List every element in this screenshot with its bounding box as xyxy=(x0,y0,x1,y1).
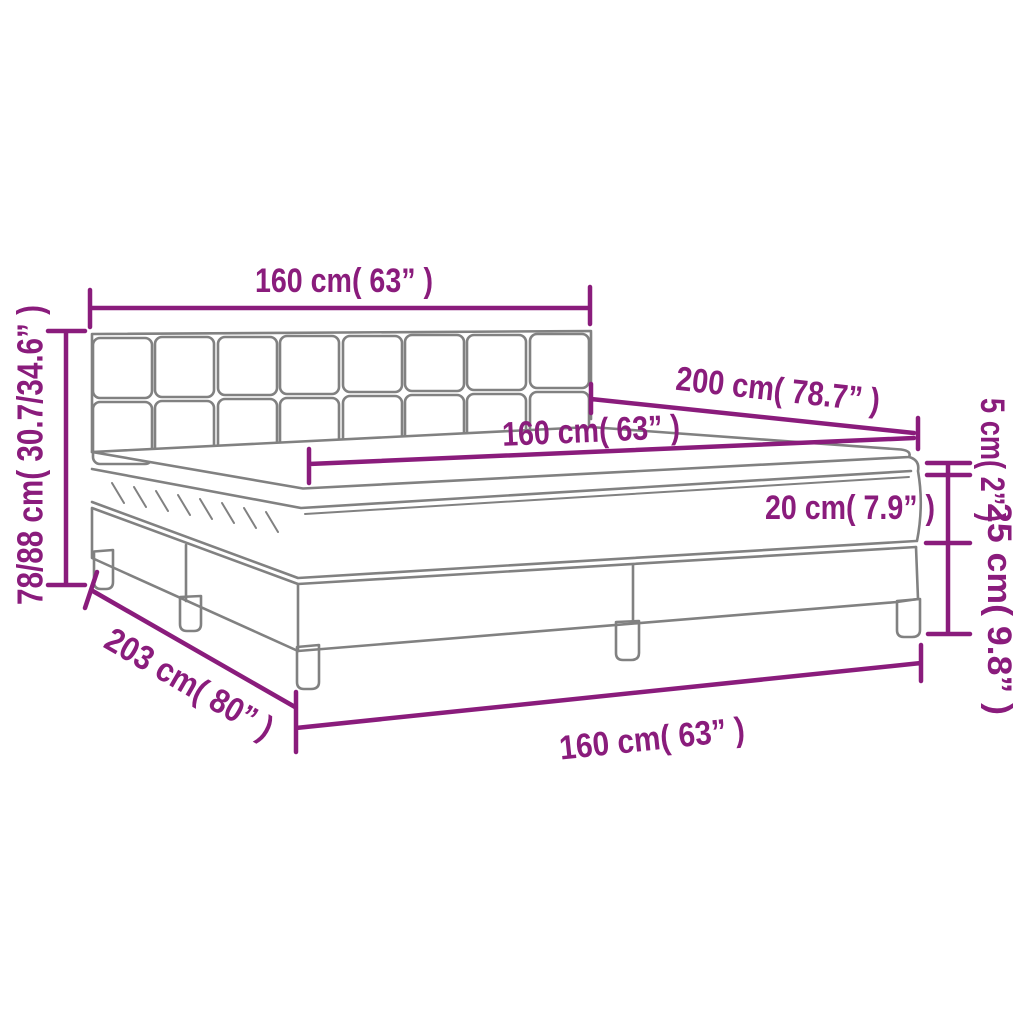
bed-leg xyxy=(94,550,113,589)
headboard-cell xyxy=(467,335,526,390)
bed-leg xyxy=(616,621,639,660)
dim-base-width: 160 cm( 63” ) xyxy=(296,645,921,768)
dim-total-height-label: 78/88 cm( 30.7/34.6” ) xyxy=(10,305,51,605)
dim-height-stack: 5 cm( 2” ) 25 cm( 9.8” ) xyxy=(926,398,1018,715)
dim-headboard-width-label: 160 cm( 63” ) xyxy=(255,262,433,300)
headboard-cell xyxy=(93,338,152,398)
headboard-cell xyxy=(218,337,277,395)
headboard-cell xyxy=(343,336,402,392)
dim-base-width-label: 160 cm( 63” ) xyxy=(558,710,747,767)
dim-mattress-height: 20 cm( 7.9” ) xyxy=(765,489,935,527)
headboard-cell xyxy=(155,337,214,397)
box-spring-front-face xyxy=(298,599,918,651)
dim-total-height: 78/88 cm( 30.7/34.6” ) xyxy=(10,305,86,605)
box-spring-divider xyxy=(186,545,633,622)
box-spring xyxy=(92,509,918,651)
mattress-right-edge xyxy=(909,457,921,599)
dim-total-height-line xyxy=(48,331,85,585)
diagram-canvas: 160 cm( 63” ) 78/88 cm( 30.7/34.6” ) 200… xyxy=(0,0,1024,1024)
headboard-cell xyxy=(280,336,339,394)
headboard-cell xyxy=(405,335,464,391)
headboard-cell xyxy=(530,334,589,388)
bed-dimension-diagram: 160 cm( 63” ) 78/88 cm( 30.7/34.6” ) 200… xyxy=(0,0,1024,1024)
dim-base-height-label: 25 cm( 9.8” ) xyxy=(980,503,1018,715)
dim-mattress-width-label: 160 cm( 63” ) xyxy=(501,408,680,454)
dim-mattress-height-label: 20 cm( 7.9” ) xyxy=(765,489,935,527)
dim-headboard-width: 160 cm( 63” ) xyxy=(90,262,590,327)
bed-leg xyxy=(897,599,920,637)
